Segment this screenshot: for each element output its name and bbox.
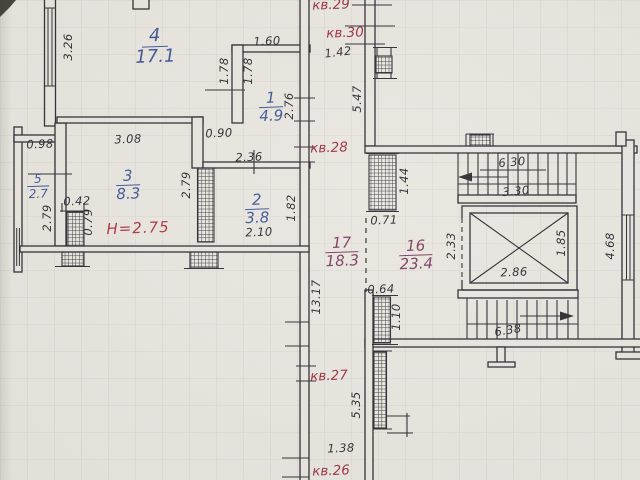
room-area: 23.4 [399,256,433,272]
dim-13-17: 13.17 [309,280,323,315]
apartment-label-kv28: кв.28 [310,139,348,156]
dim-1-60: 1.60 [253,34,281,49]
dim-1-44: 1.44 [397,167,411,194]
dim-5-35: 5.35 [349,391,363,418]
dim-1-10: 1.10 [389,303,403,330]
room-label-1: 1 4.9 [258,89,283,124]
dim-2-79a: 2.79 [179,171,193,198]
dim-0-42: 0.42 [63,194,91,209]
room-area: 4.9 [259,109,283,125]
room-label-5: 5 2.7 [27,169,50,200]
dim-3-08: 3.08 [114,132,142,147]
dim-5-47: 5.47 [350,85,364,112]
shaft-room2 [198,168,215,242]
dim-3-30: 3.30 [502,183,530,199]
room-area: 2.7 [27,188,49,201]
shaft-kv28 [366,154,399,212]
dim-1-38: 1.38 [327,441,355,456]
apartment-label-kv30: кв.30 [326,24,364,41]
dim-1-78a: 1.78 [217,57,231,84]
room-area: 18.3 [325,253,359,269]
dim-4-68: 4.68 [603,232,617,259]
dim-0-71: 0.71 [370,213,398,228]
room-label-4: 4 17.1 [134,26,175,67]
graph-paper-grid [0,0,640,480]
room-area: 8.3 [116,187,140,203]
dim-6-30: 6.30 [498,154,526,170]
dim-1-78b: 1.78 [241,57,255,84]
dim-0-64: 0.64 [367,282,395,297]
apartment-label-kv29: кв.29 [312,0,350,14]
apartment-label-kv26: кв.26 [312,462,350,479]
dim-0-98: 0.98 [26,137,54,152]
room-label-17: 17 18.3 [325,234,360,270]
dim-2-10: 2.10 [245,225,273,240]
floorplan-drawing [0,0,640,480]
dim-2-79b: 2.79 [40,204,54,231]
room-number: 4 [142,27,168,48]
dim-1-82: 1.82 [284,194,298,221]
ceiling-height-note: H=2.75 [106,218,170,238]
vent-below-wall-2 [184,252,224,269]
dim-3-26: 3.26 [61,33,75,60]
dim-1-85: 1.85 [554,229,568,256]
room-label-3: 3 8.3 [115,167,140,202]
room-number: 5 [27,172,49,187]
room-area: 17.1 [135,48,176,68]
dim-2-76: 2.76 [282,92,296,119]
room-label-16: 16 23.4 [399,237,434,273]
floor-plan-scan: 4 17.1 1 4.9 5 2.7 3 8.3 2 3.8 17 18.3 1… [0,0,640,480]
vent-stairhall-top [466,134,494,146]
room-label-2: 2 3.8 [244,191,269,226]
dim-2-86: 2.86 [500,265,528,280]
dim-0-90: 0.90 [205,126,233,141]
dim-2-36: 2.36 [235,150,263,165]
apartment-label-kv27: кв.27 [310,367,348,384]
dim-0-79: 0.79 [81,208,95,235]
dim-2-33: 2.33 [444,232,458,259]
